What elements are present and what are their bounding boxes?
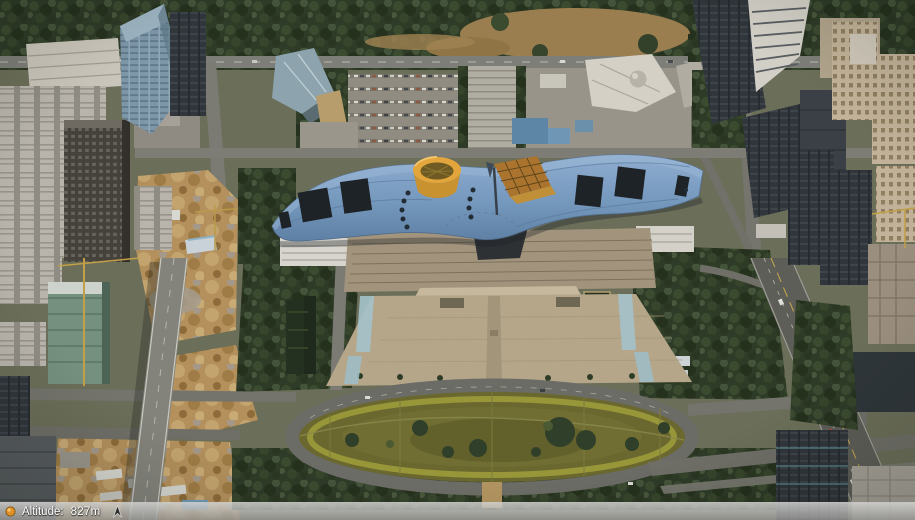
altitude-label: Altitude: xyxy=(22,506,64,518)
altitude-value: 827m xyxy=(71,506,101,518)
status-dot xyxy=(6,507,15,516)
aerial-imagery[interactable] xyxy=(0,0,915,520)
streaming-status-icon xyxy=(5,506,16,517)
status-bar: Altitude: 827m xyxy=(0,502,915,520)
north-arrow-icon[interactable] xyxy=(112,505,123,518)
map-viewport[interactable]: Altitude: 827m xyxy=(0,0,915,520)
photo-vignette xyxy=(0,0,915,520)
